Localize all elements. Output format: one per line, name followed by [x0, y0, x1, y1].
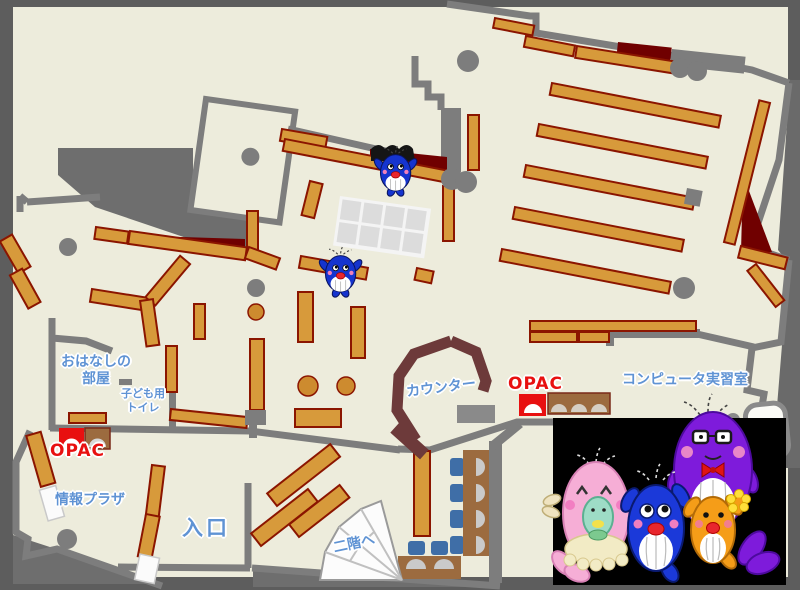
label-line: トイレ — [112, 401, 174, 415]
service-desk — [457, 405, 495, 423]
column — [670, 58, 690, 78]
annex-room — [190, 99, 295, 222]
bookshelf — [69, 413, 106, 423]
label-info-plaza: 情報プラザ — [55, 489, 125, 509]
bookshelf — [351, 307, 365, 358]
bookshelf — [468, 115, 479, 170]
label-kids-toilet: 子ども用 トイレ — [112, 387, 174, 415]
column — [57, 529, 77, 549]
chair — [431, 541, 448, 555]
column — [59, 238, 77, 256]
wall-band — [489, 441, 502, 583]
bookshelf — [166, 346, 177, 392]
chair — [408, 541, 425, 555]
column — [687, 61, 707, 81]
whale-family-image — [541, 394, 786, 585]
label-computer-room: コンピュータ実習室 — [622, 369, 748, 389]
round-stool — [248, 304, 264, 320]
wall-stub — [249, 425, 257, 438]
label-entrance: 入口 — [182, 512, 230, 542]
chair — [450, 536, 464, 554]
opac-terminal-right — [519, 393, 610, 416]
chair — [450, 510, 464, 528]
bookshelf — [443, 186, 454, 241]
label-line: おはなしの — [48, 354, 144, 371]
frame-top — [0, 0, 800, 7]
column — [247, 279, 265, 297]
shelf-end-block — [684, 188, 703, 207]
bookshelf — [250, 339, 264, 410]
door-opening — [135, 554, 160, 584]
bookshelf — [415, 268, 434, 283]
column — [673, 277, 695, 299]
chair — [450, 484, 464, 502]
wall-block — [245, 410, 266, 425]
round-stool — [298, 376, 318, 396]
column — [455, 171, 477, 193]
bookshelf — [579, 332, 609, 342]
bookshelf — [194, 304, 205, 339]
library-floor-map: おはなしの 部屋 子ども用 トイレ OPAC 情報プラザ 入口 二階へ カウンタ… — [0, 0, 800, 590]
bookshelf — [530, 321, 696, 331]
label-opac-right: OPAC — [508, 374, 563, 394]
label-line: 子ども用 — [112, 387, 174, 401]
bookshelf — [295, 409, 341, 427]
label-opac-left: OPAC — [50, 441, 105, 461]
column — [457, 50, 479, 72]
bookshelf — [298, 292, 313, 342]
round-stool — [337, 377, 355, 395]
bookshelf — [530, 332, 577, 342]
frame-left — [0, 0, 13, 590]
bookshelf — [414, 451, 430, 536]
label-ohanashi-room: おはなしの 部屋 — [48, 354, 144, 388]
chair — [450, 458, 464, 476]
label-line: 部屋 — [48, 371, 144, 388]
